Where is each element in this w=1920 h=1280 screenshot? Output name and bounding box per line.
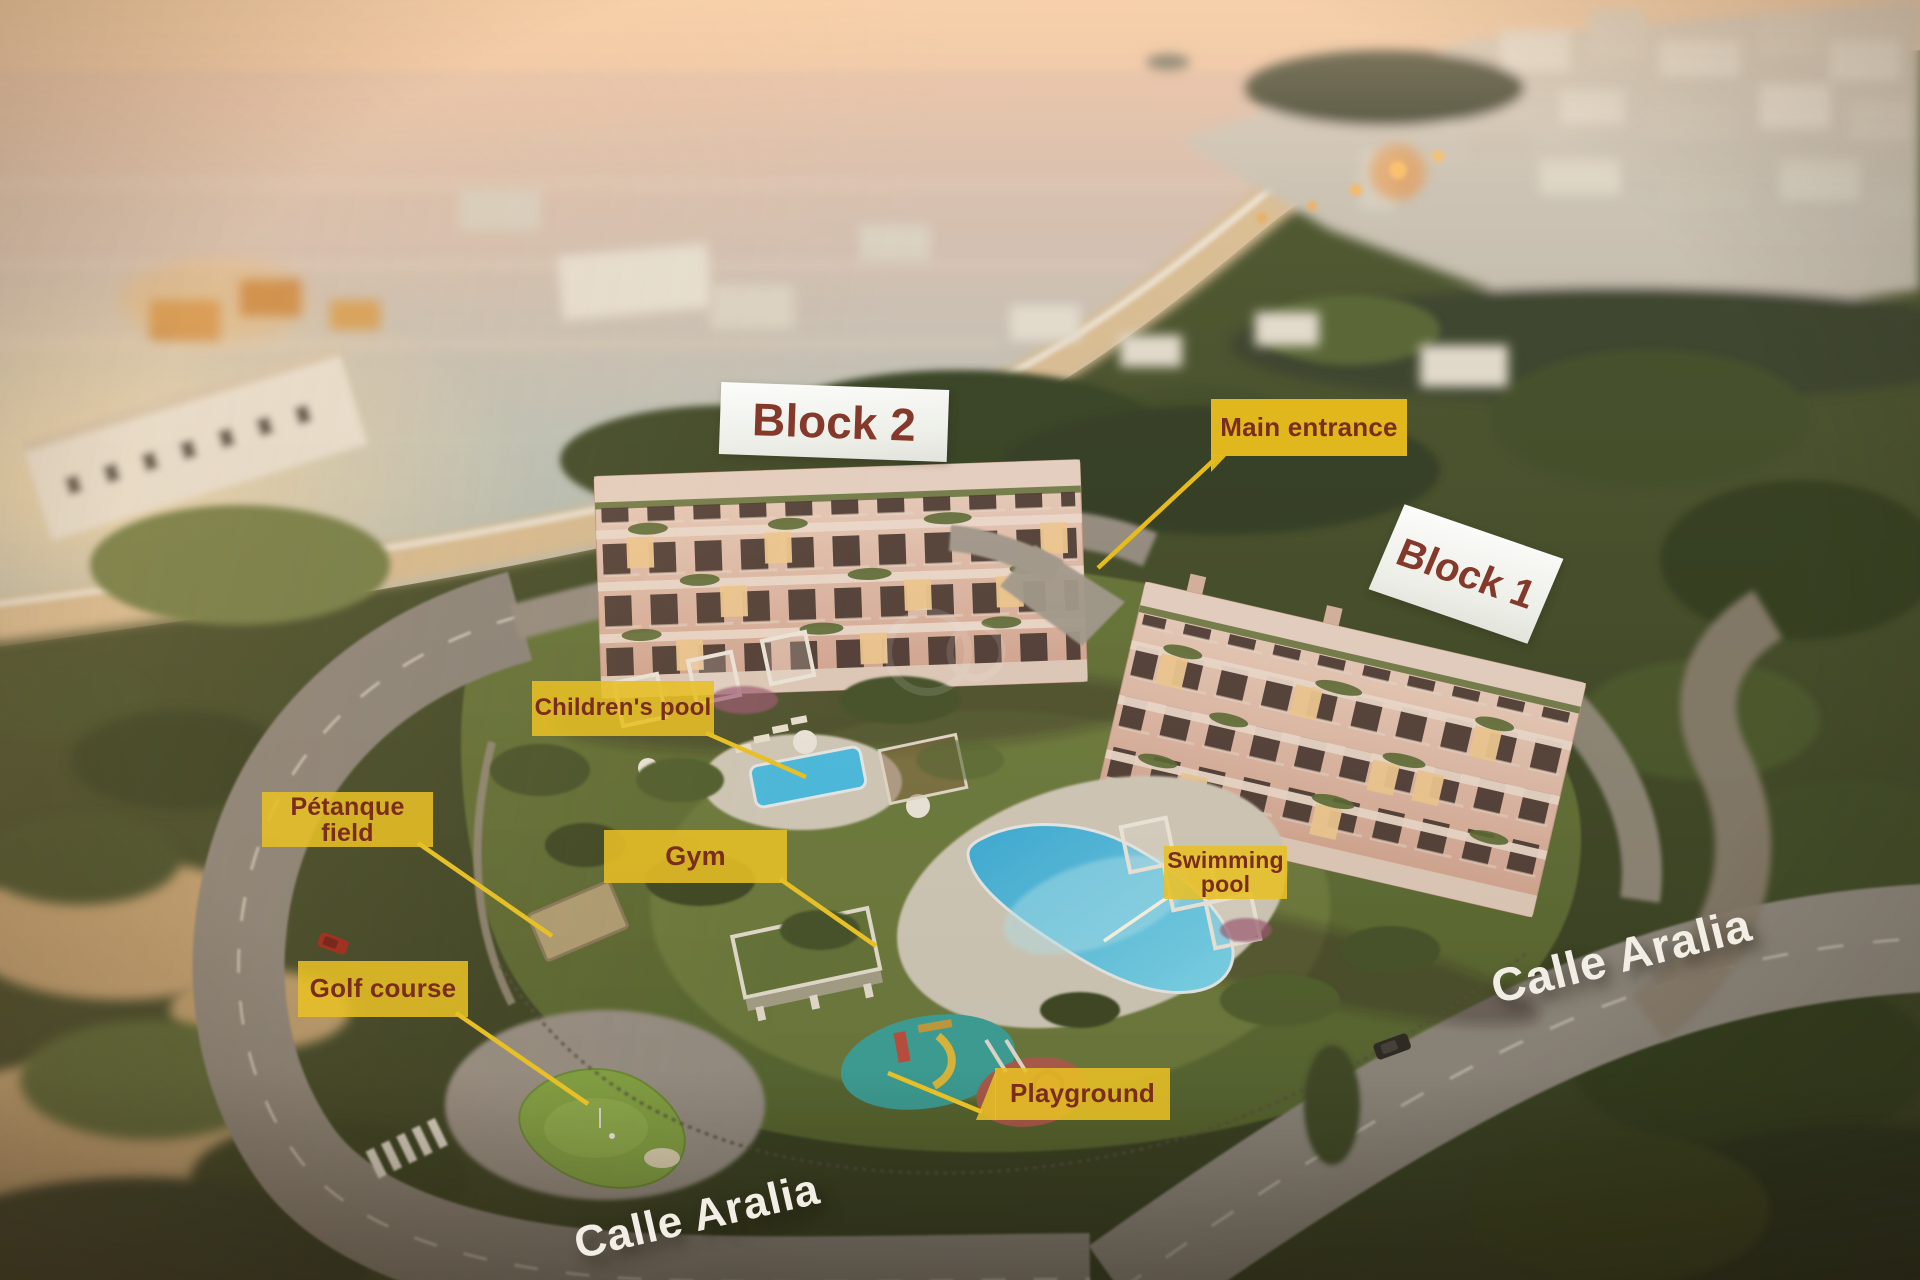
golf-course-label: Golf course: [298, 961, 468, 1017]
swimming-pool-label: Swimming pool: [1164, 846, 1287, 899]
swimming-pool-label-text: Swimming pool: [1167, 849, 1284, 897]
top-haze: [0, 0, 1920, 190]
golf-course-label-text: Golf course: [310, 975, 457, 1002]
petanque-field-label-text: Pétanque field: [290, 794, 404, 846]
block2-sign: Block 2: [719, 382, 949, 462]
parasol: [793, 730, 817, 754]
gym-label-text: Gym: [665, 842, 726, 870]
childrens-pool-label-text: Children's pool: [535, 696, 712, 721]
playground-label-text: Playground: [1010, 1080, 1155, 1107]
aerial-render: Block 2 Block 1 Main entrance Children's…: [0, 0, 1920, 1280]
gym-label: Gym: [604, 830, 787, 883]
main-entrance-label-text: Main entrance: [1220, 414, 1397, 441]
bottom-shade: [0, 1070, 1920, 1280]
playground-label: Playground: [995, 1068, 1170, 1120]
main-entrance-label: Main entrance: [1211, 399, 1407, 456]
childrens-pool-label: Children's pool: [532, 681, 714, 736]
petanque-field-label: Pétanque field: [262, 792, 433, 847]
block2-sign-text: Block 2: [751, 392, 916, 452]
site-render-illustration: [0, 0, 1920, 1280]
